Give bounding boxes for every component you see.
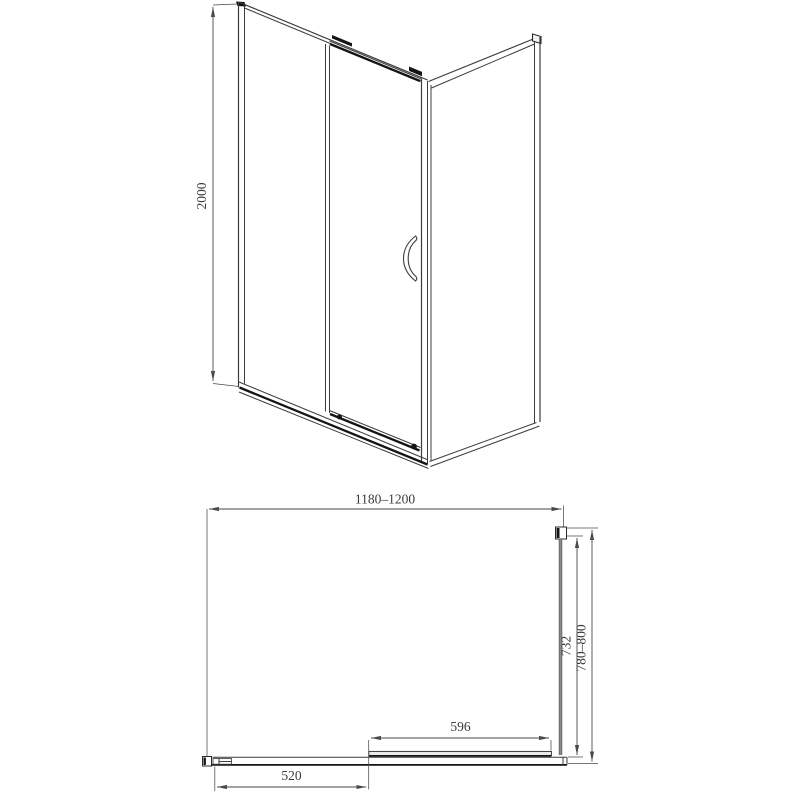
sliding-door-panel — [326, 35, 423, 451]
inner-depth-dimension-label: 732 — [559, 636, 574, 656]
width-dimension-label: 1180–1200 — [355, 492, 415, 507]
height-dimension-label: 2000 — [194, 182, 209, 209]
technical-drawing-page: 2000 — [0, 0, 800, 800]
door-frame — [236, 2, 431, 469]
bottom-track-plan — [203, 757, 568, 767]
outer-depth-dimension-label: 780–800 — [574, 624, 589, 672]
left-section-dimension: 520 — [215, 767, 366, 792]
bottom-roller-left — [337, 415, 342, 420]
plan-view: 1180–1200 732 780–800 — [203, 492, 599, 792]
wall-profile — [556, 527, 567, 539]
height-dimension: 2000 — [194, 4, 239, 387]
side-panel — [429, 34, 542, 467]
door-width-dimension-label: 596 — [450, 719, 471, 734]
width-dimension: 1180–1200 — [207, 492, 564, 757]
sliding-door-plan — [369, 751, 552, 756]
front-view: 2000 — [194, 2, 541, 469]
left-section-dimension-label: 520 — [281, 768, 302, 783]
shower-enclosure-drawing: 2000 — [0, 0, 800, 800]
bottom-roller-right — [411, 444, 417, 450]
door-handle — [404, 236, 417, 281]
